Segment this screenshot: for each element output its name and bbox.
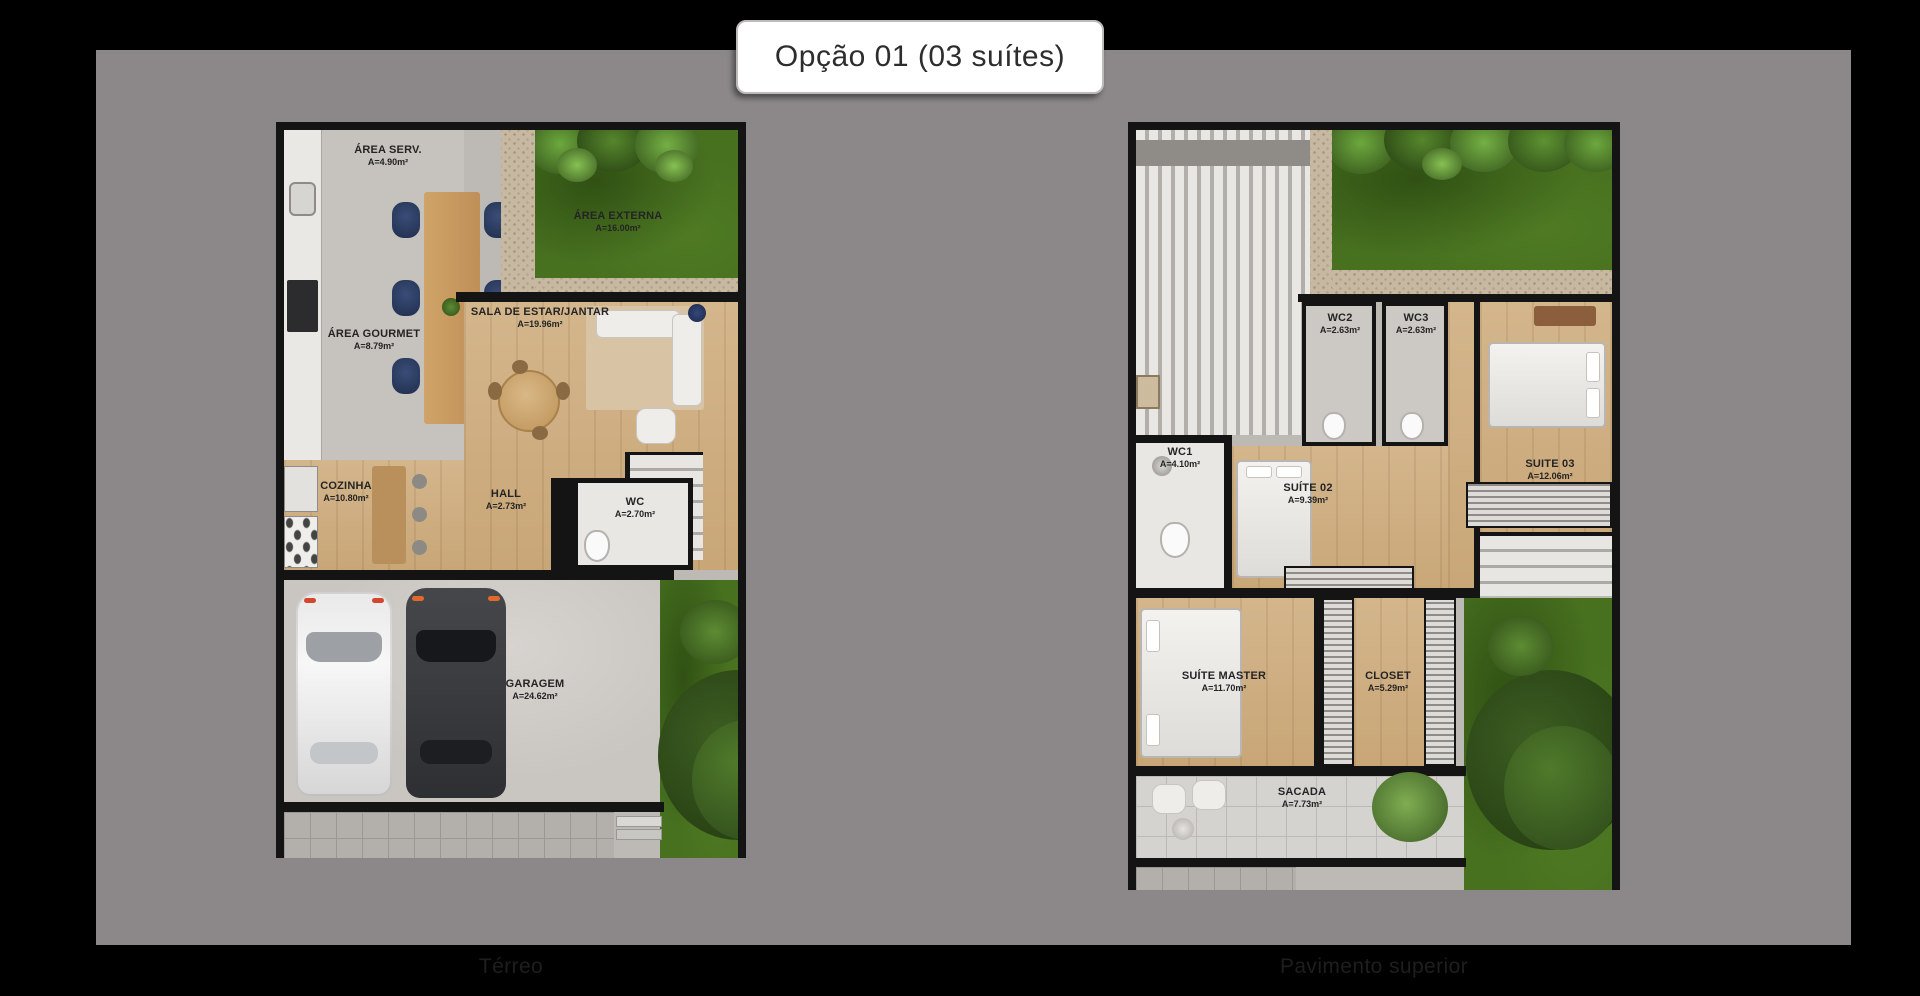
- foliage-blob: [557, 148, 597, 182]
- wall: [284, 570, 674, 580]
- armchair-icon: [636, 408, 676, 444]
- kitchen-island: [372, 466, 406, 564]
- external-area-grass: [535, 130, 738, 278]
- double-bed: [1236, 460, 1312, 578]
- dresser-icon: [1534, 306, 1596, 326]
- floorplan-pavimento-superior: WC2 A=2.63m² WC3 A=2.63m² WC1 A=4.10m² S…: [1128, 122, 1620, 890]
- floorplan-terreo: ÁREA SERV. A=4.90m² ÁREA EXTERNA A=16.00…: [276, 122, 746, 858]
- dining-table-icon: [498, 370, 560, 432]
- foliage-blob: [655, 150, 693, 182]
- slatted-roof: [1136, 130, 1310, 435]
- dining-chair-icon: [512, 360, 528, 374]
- white-car: [296, 592, 392, 796]
- step: [616, 829, 662, 840]
- toilet-icon: [1322, 412, 1346, 440]
- room-label-cozinha: COZINHA A=10.80m²: [320, 480, 372, 504]
- page-title: Opção 01 (03 suítes): [775, 40, 1065, 74]
- sofa-icon: [672, 314, 702, 406]
- wardrobe-icon: [1322, 598, 1354, 766]
- room-label-suite03: SUITE 03 A=12.06m²: [1525, 458, 1574, 482]
- tree-icon: [1488, 616, 1554, 676]
- room-label-wc3: WC3 A=2.63m²: [1396, 312, 1436, 336]
- caption-terreo: Térreo: [276, 955, 746, 979]
- wall: [1298, 294, 1612, 302]
- lower-pavers: [1136, 867, 1296, 890]
- room-label-wc1: WC1 A=4.10m²: [1160, 446, 1200, 470]
- roof-band: [1136, 140, 1310, 166]
- driveway-pavers: [284, 812, 614, 858]
- top-garden-grass: [1332, 130, 1612, 270]
- wall: [284, 802, 664, 812]
- stove-icon: [284, 516, 318, 568]
- step: [616, 816, 662, 827]
- balcony-chair-icon: [1152, 784, 1186, 814]
- chair-icon: [392, 202, 420, 238]
- wardrobe-icon: [1424, 598, 1456, 766]
- room-label-closet: CLOSET A=5.29m²: [1365, 670, 1411, 694]
- caption-pavimento-superior: Pavimento superior: [1128, 955, 1620, 979]
- room-label-garagem: GARAGEM A=24.62m²: [506, 678, 565, 702]
- dining-chair-icon: [532, 426, 548, 440]
- chair-icon: [392, 358, 420, 394]
- room-label-suite02: SUÍTE 02 A=9.39m²: [1283, 482, 1332, 506]
- balcony-table-icon: [1172, 818, 1194, 840]
- stool-icon: [412, 507, 427, 522]
- room-label-area-gourmet: ÁREA GOURMET A=8.79m²: [328, 328, 420, 352]
- chair-icon: [392, 280, 420, 316]
- side-table-icon: [688, 304, 706, 322]
- wall: [1136, 588, 1480, 598]
- wardrobe-icon: [1466, 482, 1612, 528]
- foliage-blob: [1564, 130, 1612, 172]
- dining-chair-icon: [488, 382, 502, 400]
- room-label-hall: HALL A=2.73m²: [486, 488, 526, 512]
- roof-box: [1136, 375, 1160, 409]
- wall: [1314, 598, 1322, 766]
- sink-icon: [289, 182, 316, 216]
- stool-icon: [412, 540, 427, 555]
- room-label-area-serv: ÁREA SERV. A=4.90m²: [354, 144, 422, 168]
- pebble-path: [1310, 130, 1332, 294]
- room-label-area-externa: ÁREA EXTERNA A=16.00m²: [574, 210, 663, 234]
- wall: [1136, 858, 1466, 867]
- toilet-icon: [1160, 522, 1190, 558]
- room-label-wc2: WC2 A=2.63m²: [1320, 312, 1360, 336]
- wall: [551, 478, 573, 570]
- potted-plant-icon: [1372, 772, 1448, 842]
- balcony-chair-icon: [1192, 780, 1226, 810]
- room-label-sacada: SACADA A=7.73m²: [1278, 786, 1326, 810]
- floorplan-presentation: Opção 01 (03 suítes): [0, 0, 1920, 996]
- pebble-path: [1332, 270, 1612, 294]
- toilet-icon: [1400, 412, 1424, 440]
- cabinet-icon: [284, 466, 318, 512]
- dark-car: [406, 588, 506, 798]
- pebble-path: [501, 130, 535, 308]
- room-label-wc: WC A=2.70m²: [615, 496, 655, 520]
- room-label-sala: SALA DE ESTAR/JANTAR A=19.96m²: [471, 306, 609, 330]
- tree-icon: [1504, 726, 1620, 850]
- stool-icon: [412, 474, 427, 489]
- room-label-suite-master: SUÍTE MASTER A=11.70m²: [1182, 670, 1266, 694]
- title-badge: Opção 01 (03 suítes): [736, 20, 1104, 94]
- tree-icon: [680, 600, 746, 664]
- appliance-icon: [287, 280, 318, 332]
- dining-chair-icon: [556, 382, 570, 400]
- stairs-icon: [1480, 532, 1612, 596]
- toilet-icon: [584, 530, 610, 562]
- foliage-blob: [1422, 148, 1462, 180]
- wall: [456, 292, 738, 302]
- double-bed: [1488, 342, 1606, 428]
